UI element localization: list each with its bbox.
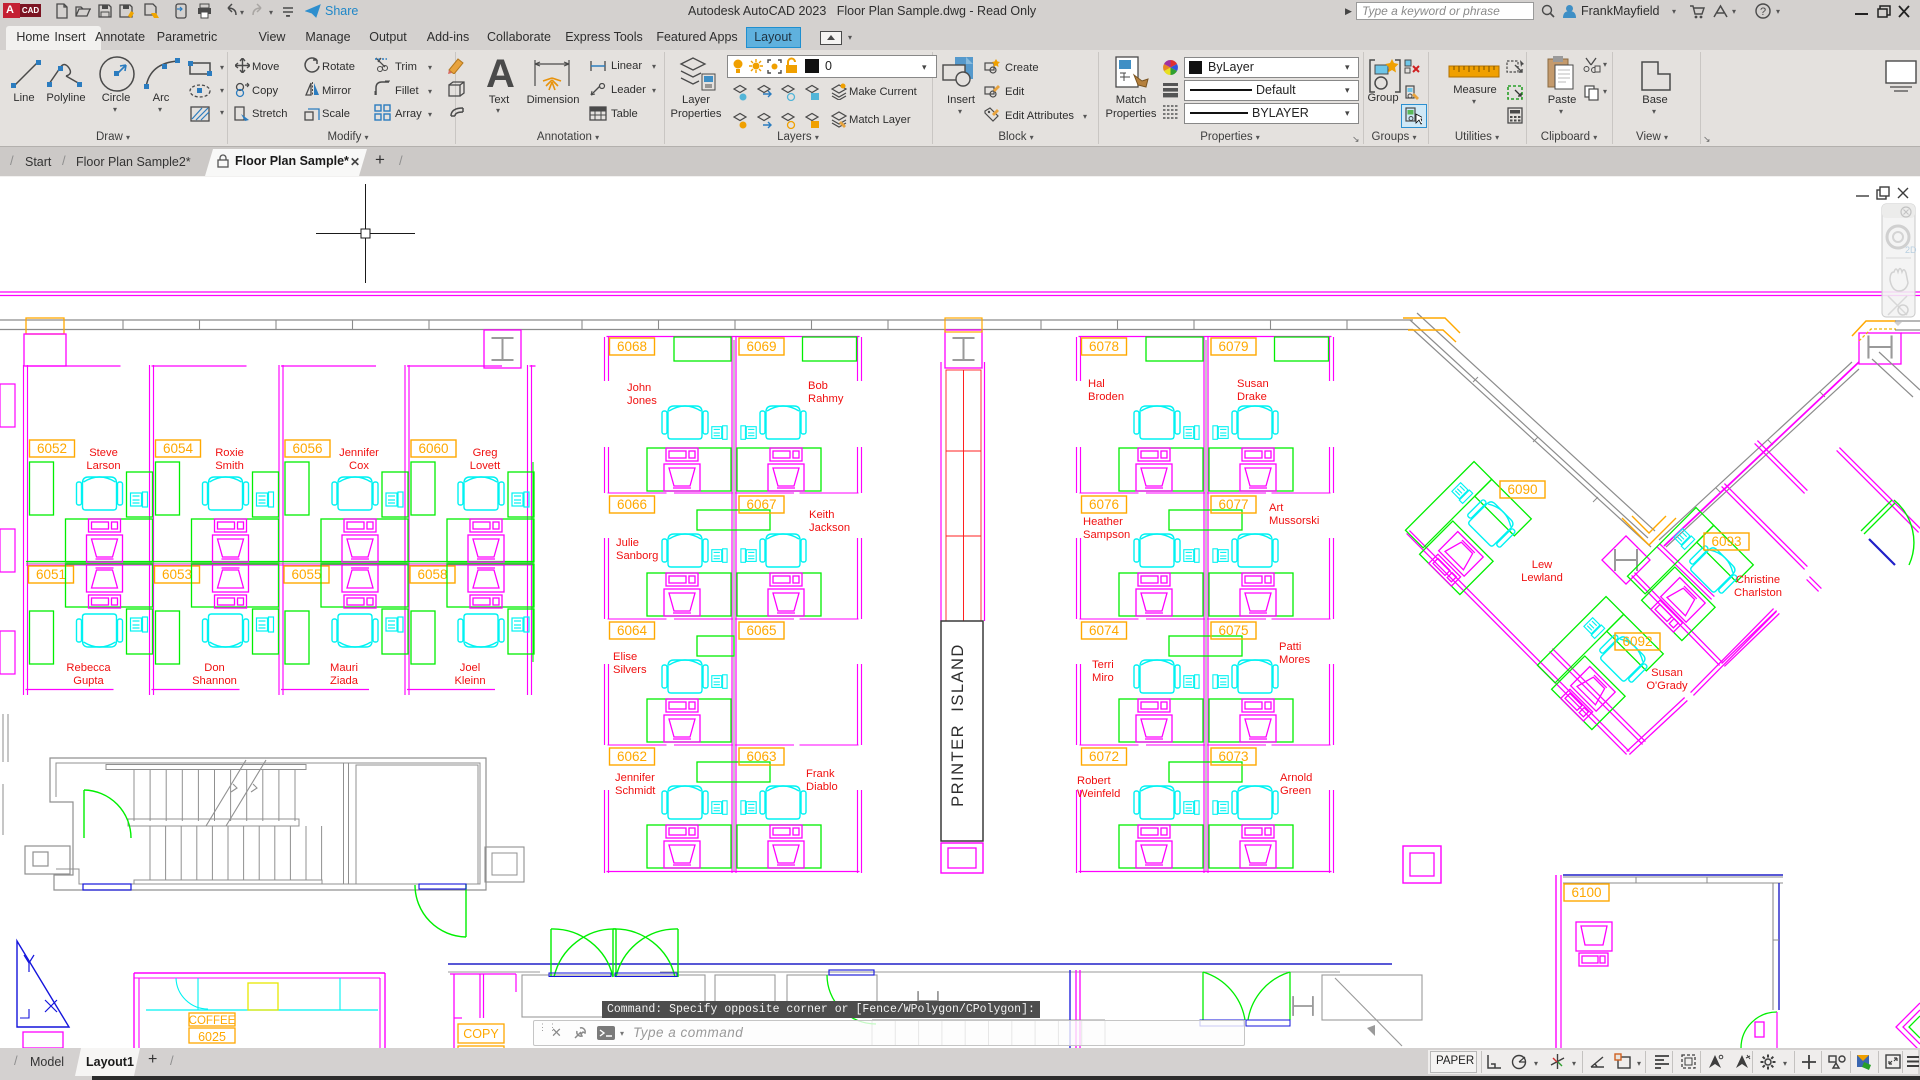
svg-text:Mussorski: Mussorski bbox=[1269, 515, 1319, 527]
svg-text:Rahmy: Rahmy bbox=[808, 393, 844, 405]
svg-text:6060: 6060 bbox=[418, 441, 448, 456]
svg-text:Schmidt: Schmidt bbox=[615, 785, 656, 797]
svg-text:6100: 6100 bbox=[1571, 885, 1601, 900]
svg-text:Weinfeld: Weinfeld bbox=[1077, 788, 1120, 800]
svg-text:Patti: Patti bbox=[1279, 641, 1301, 653]
svg-text:Robert: Robert bbox=[1077, 775, 1111, 787]
svg-text:6093: 6093 bbox=[1711, 534, 1741, 549]
svg-text:6065: 6065 bbox=[746, 623, 776, 638]
svg-text:Susan: Susan bbox=[1651, 667, 1683, 679]
svg-text:?: ? bbox=[1760, 6, 1766, 18]
svg-text:2D: 2D bbox=[1905, 245, 1917, 255]
svg-text:6025: 6025 bbox=[198, 1030, 226, 1044]
svg-text:Kleinn: Kleinn bbox=[454, 675, 485, 687]
svg-text:6072: 6072 bbox=[1089, 749, 1119, 764]
svg-text:Shannon: Shannon bbox=[192, 675, 237, 687]
svg-text:Art: Art bbox=[1269, 502, 1284, 514]
svg-text:Mores: Mores bbox=[1279, 654, 1310, 666]
svg-text:PRINTER ISLAND: PRINTER ISLAND bbox=[949, 643, 967, 807]
svg-text:6052: 6052 bbox=[37, 441, 67, 456]
svg-text:Larson: Larson bbox=[86, 460, 120, 472]
svg-text:Sampson: Sampson bbox=[1083, 529, 1130, 541]
svg-text:6077: 6077 bbox=[1218, 497, 1248, 512]
svg-text:Green: Green bbox=[1280, 785, 1311, 797]
svg-text:6067: 6067 bbox=[746, 497, 776, 512]
svg-text:6066: 6066 bbox=[617, 497, 647, 512]
svg-text:Jackson: Jackson bbox=[809, 522, 850, 534]
svg-text:6058: 6058 bbox=[417, 567, 447, 582]
svg-text:Susan: Susan bbox=[1237, 378, 1269, 390]
svg-text:6064: 6064 bbox=[617, 623, 648, 638]
svg-text:6078: 6078 bbox=[1089, 339, 1119, 354]
svg-text:6076: 6076 bbox=[1089, 497, 1119, 512]
svg-text:John: John bbox=[627, 382, 651, 394]
svg-text:Don: Don bbox=[204, 662, 225, 674]
svg-text:6056: 6056 bbox=[292, 441, 322, 456]
svg-text:6063: 6063 bbox=[746, 749, 776, 764]
svg-text:6068: 6068 bbox=[617, 339, 647, 354]
svg-text:Roxie: Roxie bbox=[215, 447, 244, 459]
svg-text:COPY: COPY bbox=[463, 1027, 499, 1041]
svg-text:Lew: Lew bbox=[1532, 559, 1553, 571]
svg-text:Joel: Joel bbox=[460, 662, 481, 674]
svg-text:6062: 6062 bbox=[617, 749, 647, 764]
svg-text:Charlston: Charlston bbox=[1734, 587, 1782, 599]
svg-text:Jennifer: Jennifer bbox=[615, 772, 655, 784]
svg-text:6092: 6092 bbox=[1622, 634, 1652, 649]
svg-text:Arnold: Arnold bbox=[1280, 772, 1312, 784]
svg-text:Lovett: Lovett bbox=[470, 460, 501, 472]
svg-text:Lewland: Lewland bbox=[1521, 572, 1563, 584]
svg-text:Heather: Heather bbox=[1083, 516, 1123, 528]
svg-text:Steve: Steve bbox=[89, 447, 118, 459]
svg-text:Rebecca: Rebecca bbox=[66, 662, 111, 674]
svg-text:Frank: Frank bbox=[806, 768, 835, 780]
svg-text:Bob: Bob bbox=[808, 380, 828, 392]
svg-text:6074: 6074 bbox=[1089, 623, 1120, 638]
svg-text:Ziada: Ziada bbox=[330, 675, 359, 687]
svg-text:Sanborg: Sanborg bbox=[616, 550, 658, 562]
svg-text:Terri: Terri bbox=[1092, 659, 1114, 671]
svg-text:O'Grady: O'Grady bbox=[1646, 680, 1688, 692]
svg-text:Greg: Greg bbox=[473, 447, 498, 459]
svg-text:6053: 6053 bbox=[162, 567, 192, 582]
svg-text:Cox: Cox bbox=[349, 460, 369, 472]
svg-text:6055: 6055 bbox=[291, 567, 321, 582]
svg-text:6069: 6069 bbox=[746, 339, 776, 354]
svg-text:6051: 6051 bbox=[36, 567, 66, 582]
svg-text:6073: 6073 bbox=[1218, 749, 1248, 764]
svg-text:Broden: Broden bbox=[1088, 391, 1124, 403]
svg-text:COFFEE: COFFEE bbox=[189, 1015, 236, 1027]
svg-text:Christine: Christine bbox=[1736, 574, 1780, 586]
svg-text:Diablo: Diablo bbox=[806, 781, 838, 793]
svg-text:Elise: Elise bbox=[613, 651, 637, 663]
svg-text:Jones: Jones bbox=[627, 395, 657, 407]
svg-text:Jennifer: Jennifer bbox=[339, 447, 379, 459]
svg-text:6090: 6090 bbox=[1507, 482, 1537, 497]
svg-text:6054: 6054 bbox=[163, 441, 194, 456]
svg-text:Smith: Smith bbox=[215, 460, 244, 472]
svg-text:Drake: Drake bbox=[1237, 391, 1267, 403]
svg-text:Keith: Keith bbox=[809, 509, 835, 521]
svg-text:6075: 6075 bbox=[1218, 623, 1248, 638]
svg-text:Miro: Miro bbox=[1092, 672, 1114, 684]
svg-text:Mauri: Mauri bbox=[330, 662, 358, 674]
svg-text:Julie: Julie bbox=[616, 537, 639, 549]
svg-text:Silvers: Silvers bbox=[613, 664, 647, 676]
svg-text:Hal: Hal bbox=[1088, 378, 1105, 390]
svg-text:6079: 6079 bbox=[1218, 339, 1248, 354]
svg-text:Gupta: Gupta bbox=[73, 675, 104, 687]
